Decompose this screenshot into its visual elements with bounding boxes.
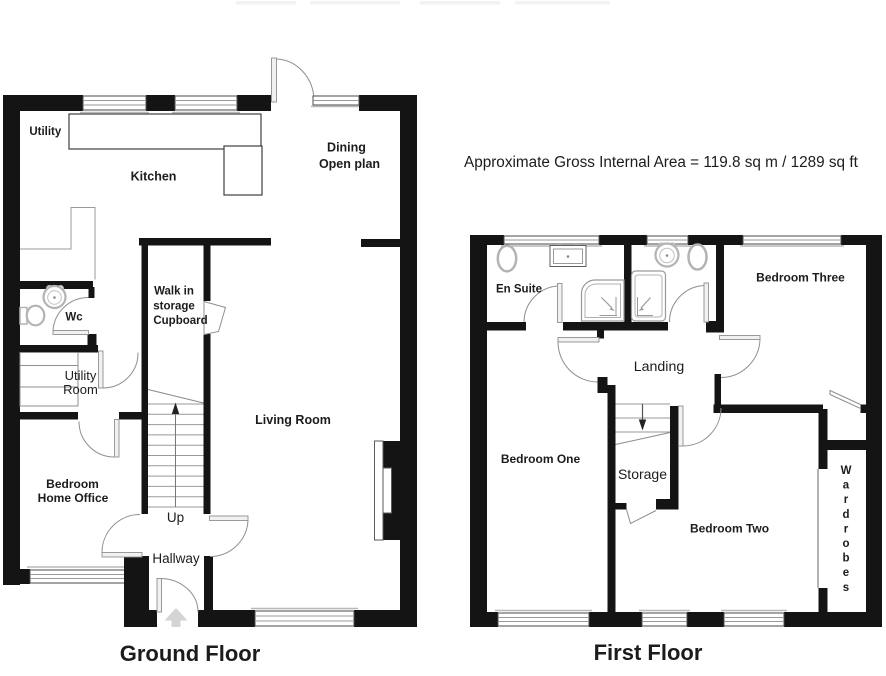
svg-text:First Floor: First Floor bbox=[594, 640, 703, 665]
svg-text:Living Room: Living Room bbox=[255, 413, 331, 427]
svg-text:Utility: Utility bbox=[29, 126, 62, 138]
svg-text:Landing: Landing bbox=[634, 359, 685, 375]
svg-text:Open plan: Open plan bbox=[319, 157, 380, 171]
svg-text:Bedroom Three: Bedroom Three bbox=[756, 271, 845, 285]
svg-text:Ground Floor: Ground Floor bbox=[120, 641, 261, 666]
svg-text:Approximate Gross Internal Are: Approximate Gross Internal Area = 119.8 … bbox=[464, 154, 859, 171]
svg-text:Storage: Storage bbox=[618, 466, 667, 482]
svg-text:Dining: Dining bbox=[327, 141, 366, 155]
svg-text:En Suite: En Suite bbox=[496, 284, 542, 296]
svg-text:Room: Room bbox=[63, 382, 98, 397]
svg-text:Bedroom Two: Bedroom Two bbox=[690, 522, 769, 536]
svg-text:Walk in: Walk in bbox=[154, 286, 194, 298]
svg-text:Cupboard: Cupboard bbox=[153, 315, 207, 327]
svg-text:Up: Up bbox=[167, 510, 184, 525]
svg-text:Kitchen: Kitchen bbox=[131, 170, 177, 184]
svg-text:Home Office: Home Office bbox=[38, 491, 109, 505]
svg-text:Bedroom: Bedroom bbox=[46, 477, 99, 491]
svg-text:Wc: Wc bbox=[65, 312, 83, 324]
svg-text:Utility: Utility bbox=[65, 368, 97, 383]
svg-text:Hallway: Hallway bbox=[152, 551, 200, 566]
svg-text:Bedroom One: Bedroom One bbox=[501, 452, 581, 466]
svg-text:storage: storage bbox=[153, 301, 195, 313]
